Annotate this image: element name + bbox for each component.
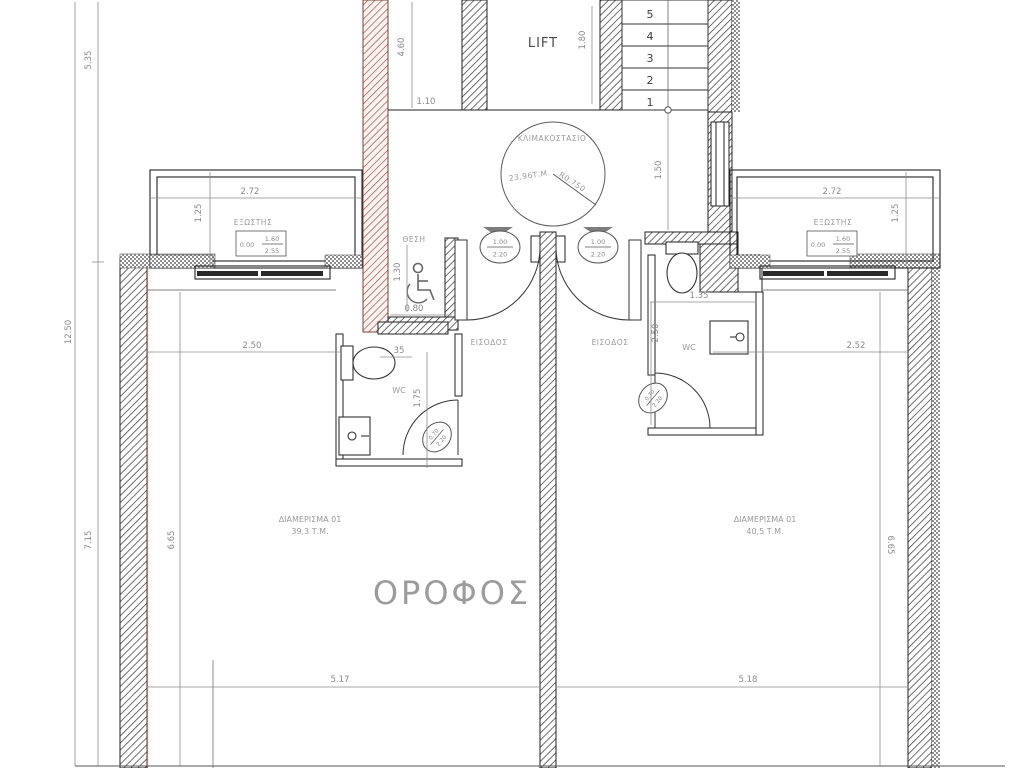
wc-left-east-wall — [455, 334, 462, 396]
lift-left-wall — [462, 0, 487, 110]
wheelchair-icon — [407, 264, 434, 303]
dim-landing: 1.50 — [654, 161, 664, 180]
wc-right-south-wall — [648, 428, 763, 435]
wc-left-top-wall — [378, 322, 448, 334]
dim-wc-right-b: 2.50 — [651, 324, 661, 343]
left-outer-wall — [120, 258, 147, 768]
entrance-right-label: ΕΙΣΟΔΟΣ — [592, 338, 629, 347]
toilet-tank-right — [666, 242, 698, 254]
stairwell-area-label: 23,96Τ.Μ. — [508, 168, 551, 183]
stair-number-1: 1 — [647, 96, 654, 109]
stair-number-2: 2 — [647, 74, 654, 87]
wc-right-east-wall — [756, 292, 763, 435]
balcony-left-door-sash — [197, 271, 258, 276]
dim-niche-width: 0.80 — [405, 304, 424, 314]
door-frame-right — [556, 236, 565, 262]
lift-label: LIFT — [528, 36, 558, 51]
core-window — [711, 122, 729, 206]
dim-balcony-right-width: 2.72 — [823, 187, 842, 197]
window-spec-box-left: 0.00 1.60 2.55 — [236, 231, 286, 256]
apt-left-area: 39,3 Τ.Μ. — [291, 527, 328, 536]
wc-left-door-tag: 0.70 2.20 — [417, 416, 457, 457]
dim-wc-left-a: 35 — [394, 346, 405, 356]
dim-apt-right-bottom: 5.18 — [739, 675, 758, 685]
balcony-right-door-sash — [827, 271, 888, 276]
walls — [75, 0, 1005, 768]
dim-wc-right-a: 1.35 — [690, 291, 709, 301]
window-bottom-label: 2.55 — [265, 247, 279, 255]
stair-number-4: 4 — [647, 30, 654, 43]
door-frame-left — [531, 236, 540, 262]
sink-right-drain — [736, 333, 744, 341]
wc-right-label: WC — [682, 343, 696, 352]
stairwell-circle: ΚΛΙΜΑΚΟΣΤΑΣΙΟ 23,96Τ.Μ. R0.750 — [501, 122, 605, 226]
floor-title: ΟΡΟΦΟΣ — [373, 574, 531, 612]
central-party-wall — [540, 232, 556, 768]
entrance-left-door-tag: 1.00 2.20 — [480, 231, 520, 263]
dim-apt-left-bottom: 5.17 — [331, 675, 350, 685]
stair-number-3: 3 — [647, 52, 654, 65]
window-sill-label: 0.00 — [811, 241, 825, 249]
entrance-left-label: ΕΙΣΟΔΟΣ — [471, 338, 508, 347]
balcony-right-door-sash — [763, 271, 824, 276]
dim-balcony-left-width: 2.72 — [241, 187, 260, 197]
wc-right-west-wall — [648, 255, 655, 375]
dim-balcony-right-depth: 1.25 — [891, 204, 901, 223]
dim-top-left: 5.35 — [84, 51, 94, 70]
right-outer-wall — [908, 258, 932, 768]
dim-wc-left-b: 1.75 — [413, 389, 423, 408]
staircase — [622, 0, 708, 113]
balcony-left-label: ΕΞΩΣΤΗΣ — [234, 218, 272, 227]
apt-left-name: ΔΙΑΜΕΡΙΣΜΑ 01 — [279, 515, 342, 524]
wc-left-label: WC — [392, 386, 406, 395]
window-spec-box-right: 0.00 1.60 2.55 — [807, 231, 857, 256]
dim-core-height: 4.60 — [397, 38, 407, 57]
window-top-label: 1.60 — [836, 235, 850, 243]
floor-plan-drawing: 5 4 3 2 1 ΚΛΙΜΑΚΟΣΤΑΣΙΟ 23,96Τ.Μ. R0.750… — [0, 0, 1024, 768]
door-height-label: 2.20 — [591, 251, 605, 259]
dim-balcony-left-depth: 1.25 — [194, 204, 204, 223]
stair-right-insulation — [732, 0, 740, 112]
apt-right-name: ΔΙΑΜΕΡΙΣΜΑ 01 — [734, 515, 797, 524]
dim-lift-depth: 1.80 — [578, 31, 588, 50]
dim-total-left: 12.50 — [64, 320, 74, 344]
dim-niche-depth: 1.30 — [393, 263, 403, 282]
wc-right-door-tag: 0.70 2.20 — [633, 377, 673, 418]
stair-right-wall — [708, 0, 732, 112]
dim-apt-right-top: 2.52 — [847, 341, 866, 351]
stairwell-name-label: ΚΛΙΜΑΚΟΣΤΑΣΙΟ — [518, 134, 587, 143]
apt-right-area: 40,5 Τ.Μ. — [746, 527, 783, 536]
core-west-wall — [363, 0, 388, 332]
floor-plan-canvas: 5 4 3 2 1 ΚΛΙΜΑΚΟΣΤΑΣΙΟ 23,96Τ.Μ. R0.750… — [0, 0, 1024, 768]
dim-apt-left-top: 2.50 — [243, 341, 262, 351]
dim-apt-left-side: 6.65 — [167, 531, 177, 550]
toilet-tank-left — [341, 346, 353, 380]
accessible-spot-label: ΘΕΣΗ — [402, 235, 425, 244]
door-height-label: 2.20 — [493, 251, 507, 259]
window-bottom-label: 2.55 — [836, 247, 850, 255]
sink-left-drain — [348, 432, 356, 440]
dim-apt-right-side: 6.65 — [885, 536, 895, 555]
toilet-bowl-left — [353, 347, 395, 379]
door-width-label: 1.00 — [591, 238, 605, 246]
balcony-right-label: ΕΞΩΣΤΗΣ — [814, 218, 852, 227]
window-sill-label: 0.00 — [240, 241, 254, 249]
toilet-bowl-right — [667, 253, 697, 293]
stairwell-radius-label: R0.750 — [557, 170, 587, 194]
balcony-left-door-sash — [261, 271, 323, 276]
dim-core-width: 1.10 — [417, 97, 436, 107]
wc-left-south-wall — [336, 459, 462, 466]
lift-right-wall — [600, 0, 622, 110]
dimension-lines — [75, 2, 940, 766]
window-top-label: 1.60 — [265, 235, 279, 243]
door-width-label: 1.00 — [493, 238, 507, 246]
dim-bottom-left: 7.15 — [84, 531, 94, 550]
right-outer-insulation — [932, 258, 940, 768]
stair-number-5: 5 — [647, 8, 654, 21]
entrance-right-door-tag: 1.00 2.20 — [578, 231, 618, 263]
